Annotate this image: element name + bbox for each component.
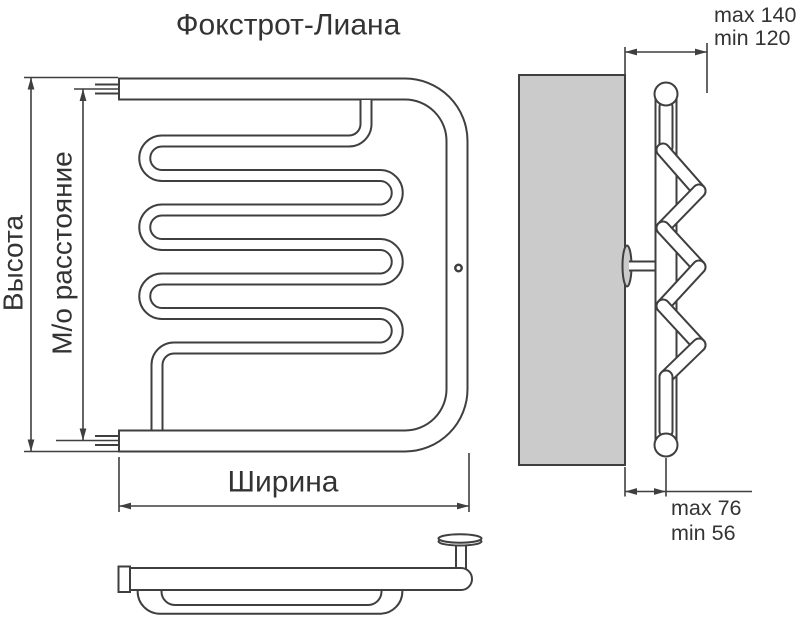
drawing-title: Фокстрот-Лиана — [176, 9, 401, 42]
frame-tube — [119, 78, 457, 453]
wall — [519, 75, 625, 465]
bottom-view — [119, 534, 482, 614]
side-view — [519, 43, 752, 497]
axial-distance-dimension-label: М/о расстояние — [47, 151, 78, 355]
width-dimension-label: Ширина — [228, 466, 339, 499]
front-view — [24, 78, 469, 513]
tube-end-top — [655, 83, 678, 106]
air-vent — [455, 265, 461, 271]
bracket-disc — [439, 534, 482, 545]
mount-depth-max-label: max 76 — [671, 496, 742, 520]
wall-offset-max-label: max 140 — [714, 3, 797, 27]
tube-end-cap — [119, 567, 131, 593]
serpentine-coil — [145, 100, 397, 430]
mount-depth-min-label: min 56 — [671, 521, 736, 545]
tube-end-bottom — [655, 434, 678, 457]
technical-drawing: Фокстрот-Лиана Высота М/о расстояние Шир… — [0, 0, 800, 623]
height-dimension-label: Высота — [0, 214, 29, 311]
dimension-mount-depth — [625, 458, 752, 497]
wall-offset-min-label: min 120 — [714, 26, 791, 50]
drawing-canvas: Фокстрот-Лиана Высота М/о расстояние Шир… — [0, 0, 800, 623]
tube-top-view — [130, 568, 472, 590]
